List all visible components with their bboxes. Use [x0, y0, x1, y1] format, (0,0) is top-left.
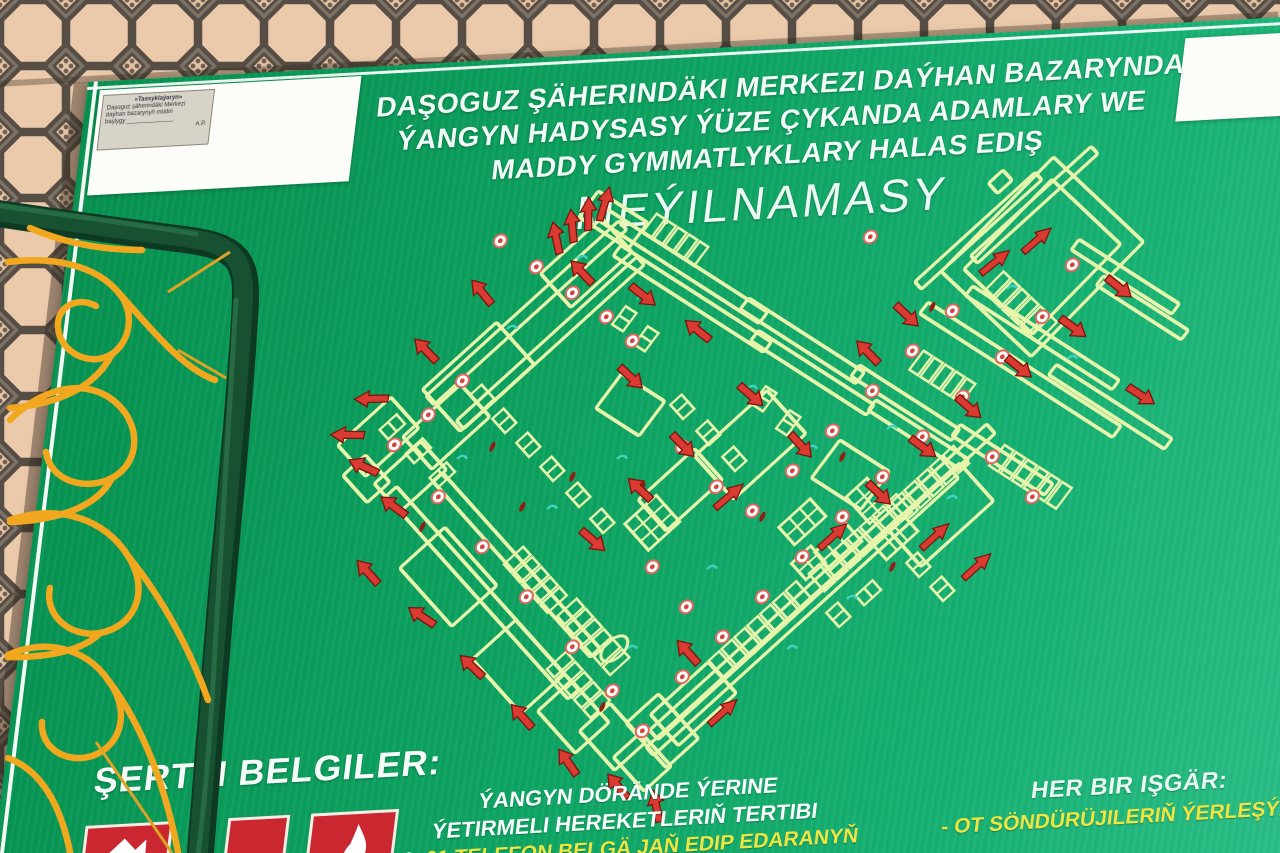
photo-of-evacuation-plan-sign: «Tassyklaýaryn» Daşoguz şäherindäki Merk…: [0, 0, 1280, 853]
decorative-net: [8, 228, 215, 852]
fence-frame: [0, 0, 1280, 853]
